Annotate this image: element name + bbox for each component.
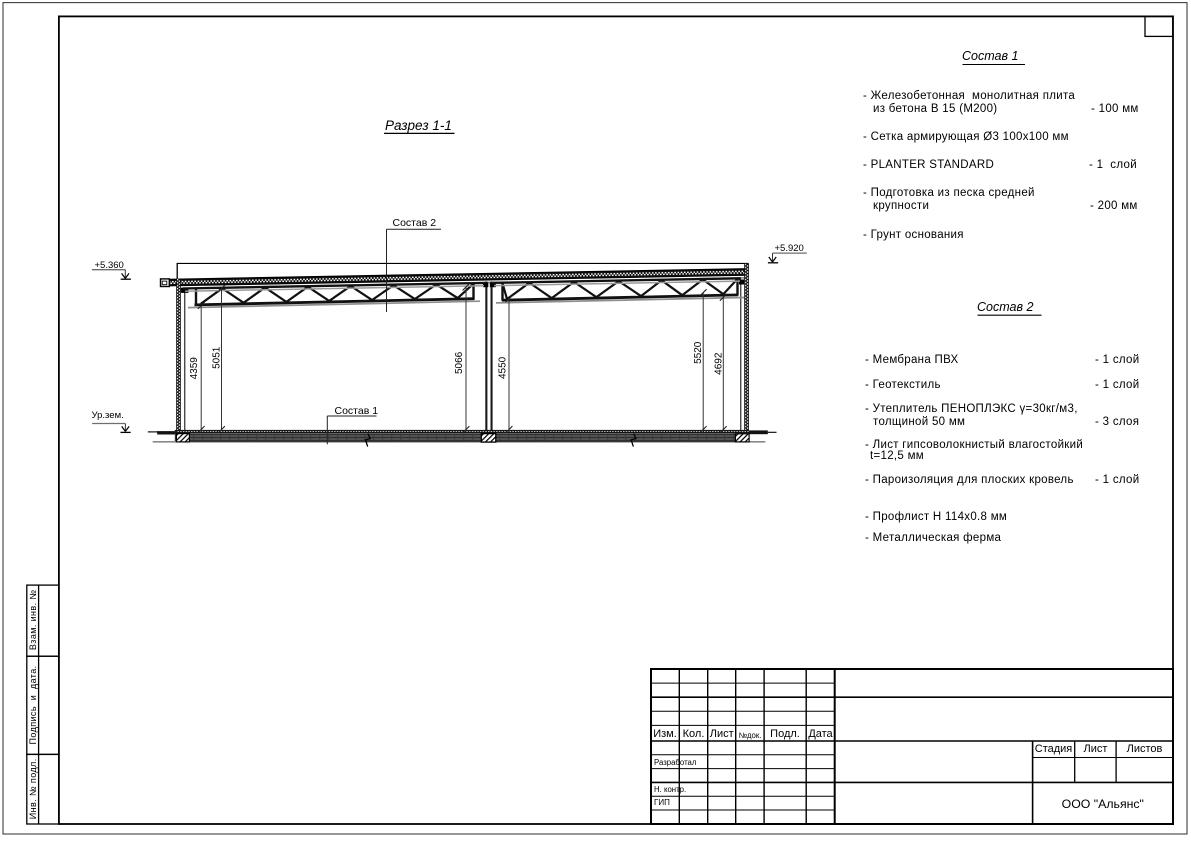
svg-text:Подпись и дата.: Подпись и дата.: [28, 665, 38, 744]
svg-text:5051: 5051: [212, 346, 223, 369]
svg-text:5066: 5066: [454, 351, 465, 374]
svg-text:4359: 4359: [189, 357, 200, 380]
svg-text:Взам. инв. №: Взам. инв. №: [28, 590, 38, 651]
svg-text:Инв. № подл.: Инв. № подл.: [28, 758, 38, 819]
svg-text:4550: 4550: [498, 356, 509, 379]
svg-text:4692: 4692: [714, 352, 725, 375]
svg-text:5520: 5520: [693, 341, 704, 364]
